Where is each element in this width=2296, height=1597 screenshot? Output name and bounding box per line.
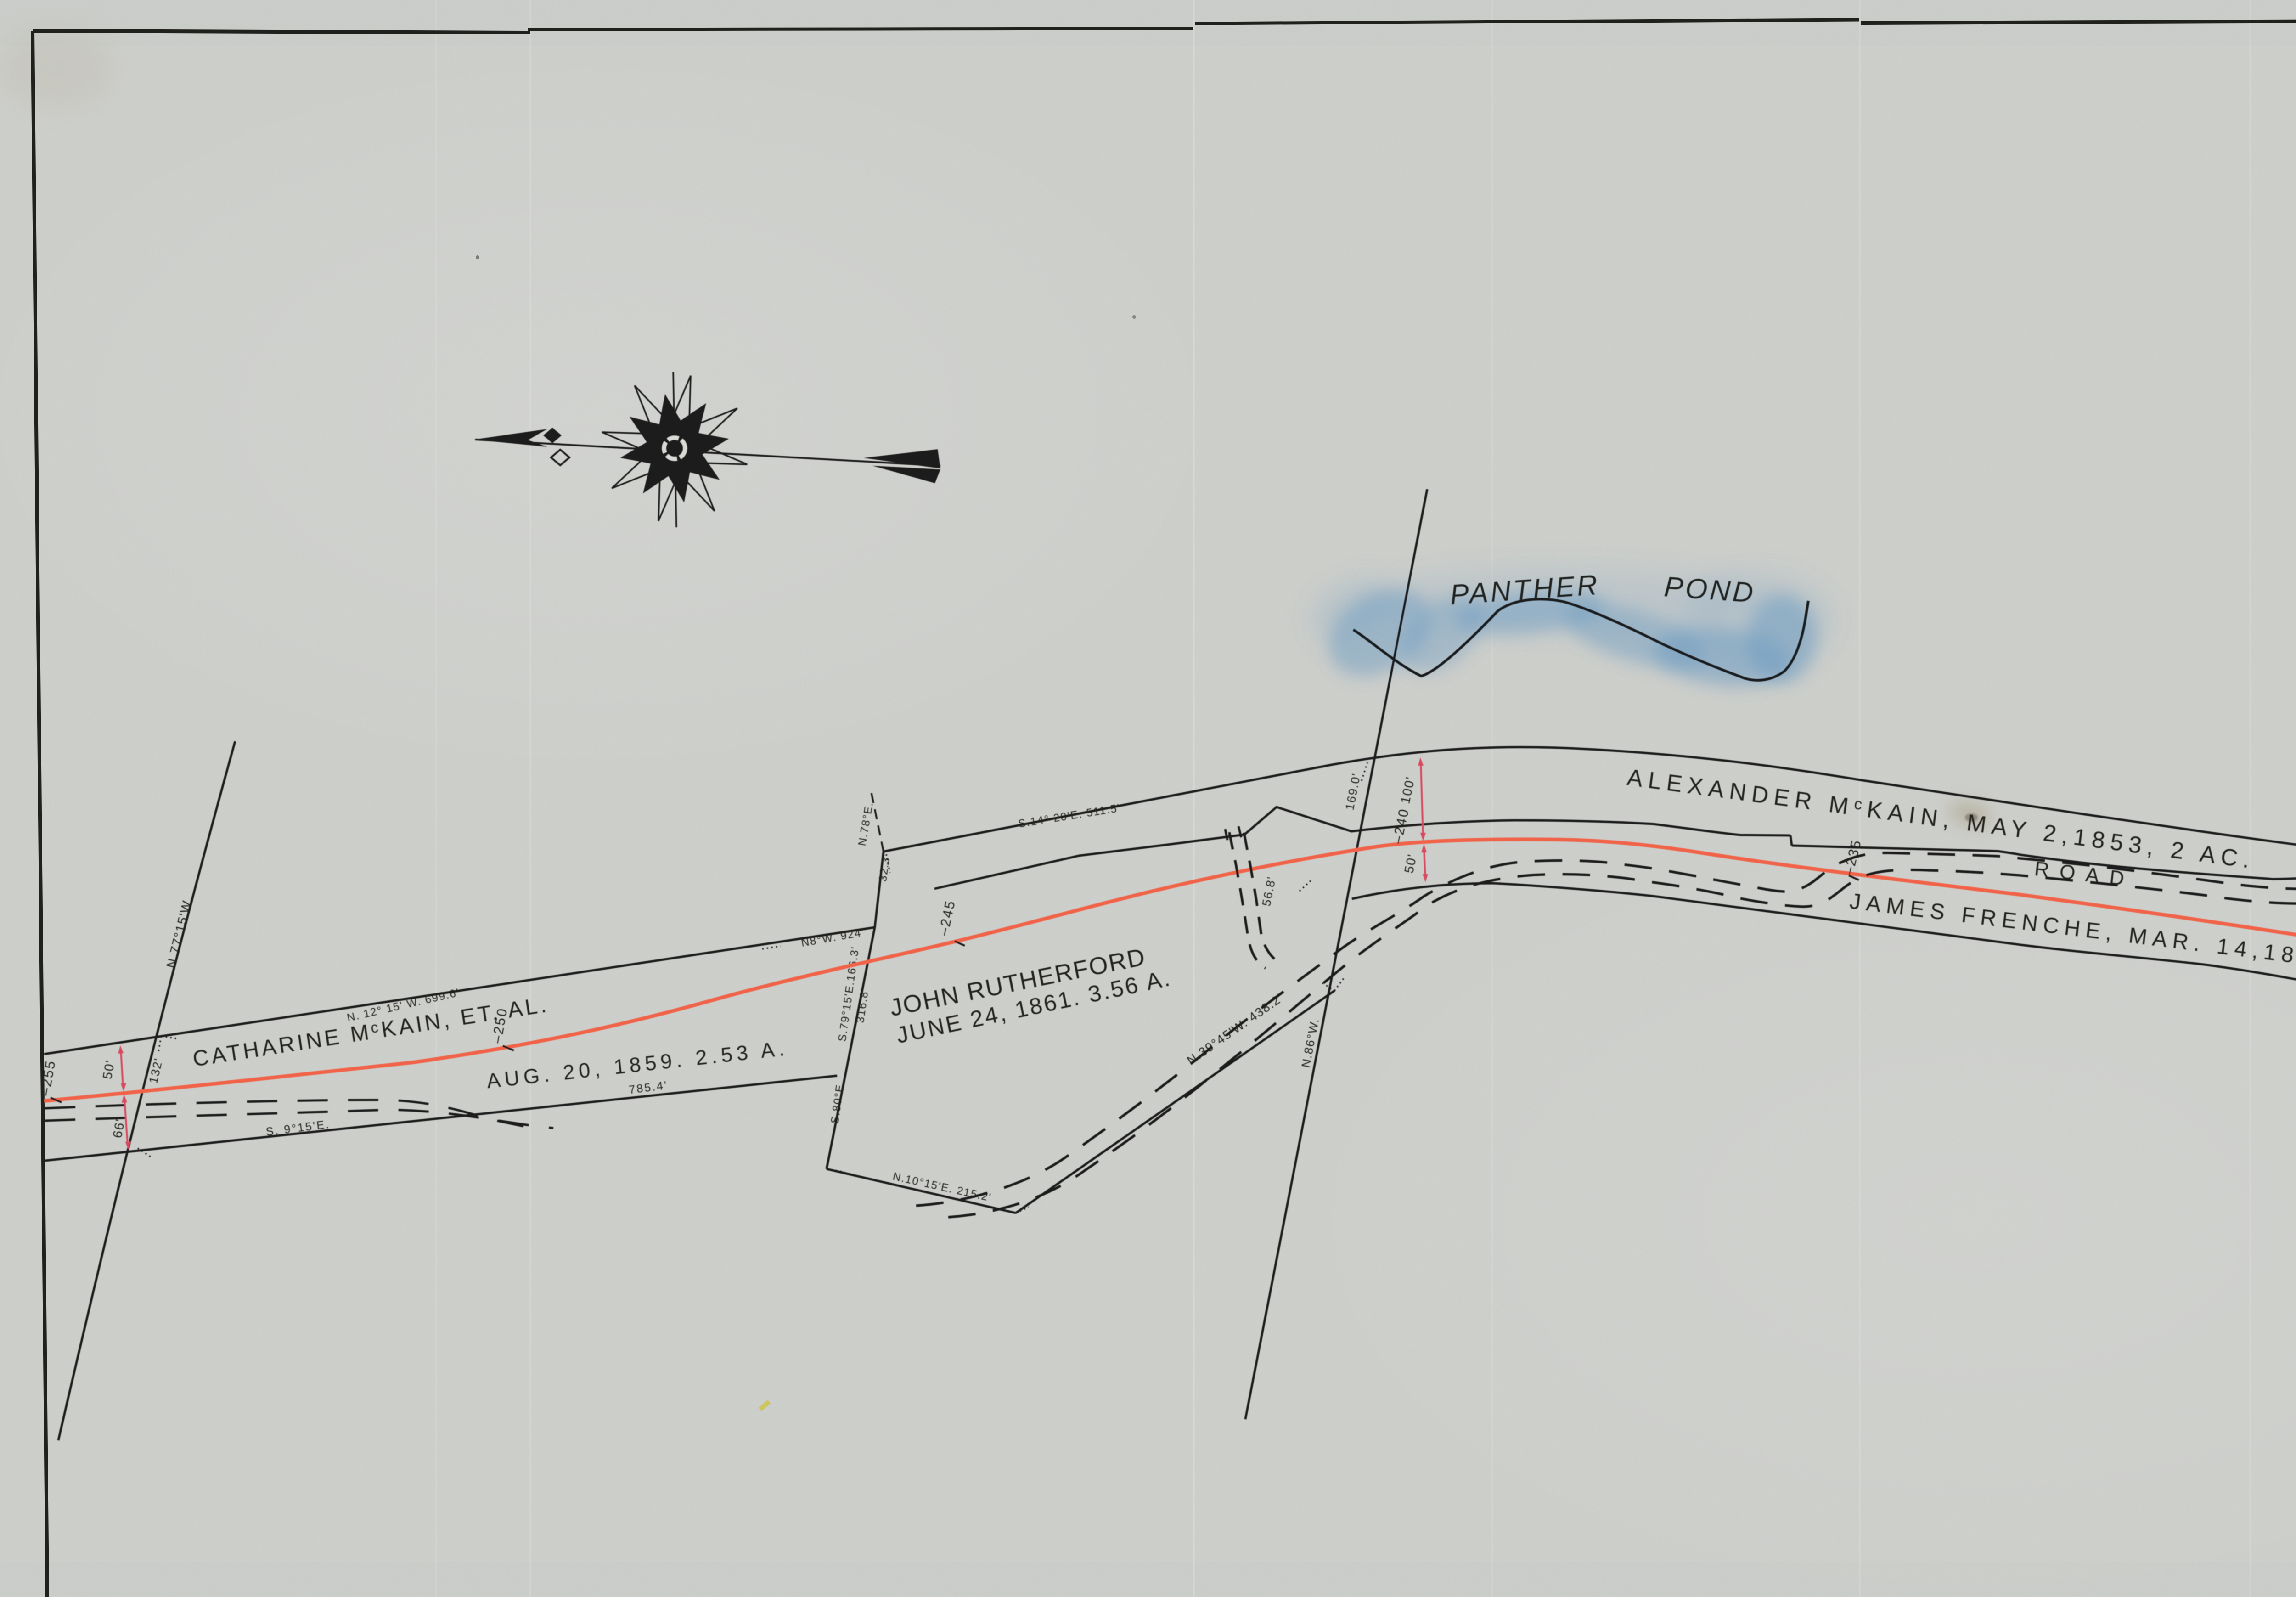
- svg-text:POND: POND: [1663, 571, 1756, 609]
